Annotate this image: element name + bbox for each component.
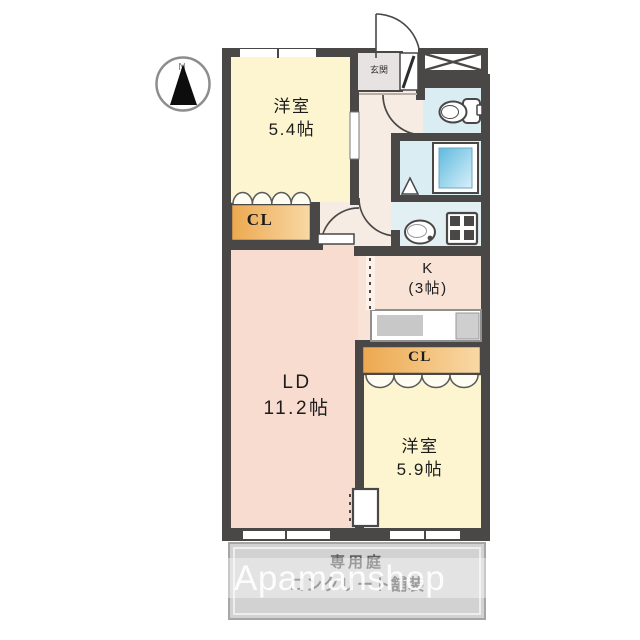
bedroom1-size: 5.4帖 [269,119,316,142]
kitchen-name: K [422,260,434,277]
kitchen-size: (3帖) [408,279,447,299]
kitchen-counter [371,310,481,341]
bedroom2-door [350,489,378,526]
ldk-partition-dashed [366,256,375,310]
entrance-label: 玄関 [370,64,388,76]
entrance-area [357,14,420,94]
meter-box-x-icon [418,48,488,76]
washbasin-icon [405,221,435,244]
north-compass-icon: N [157,58,210,111]
bedroom2-label: 洋室 5.9帖 [397,436,444,482]
watermark-text: Apamanshop [234,559,445,599]
kitchen-label: K (3帖) [408,259,447,300]
living-dining-name: LD [282,372,311,393]
bedroom1-name: 洋室 [273,97,310,116]
bedroom1-door [350,112,359,159]
closet1-label: CL [247,209,274,232]
bathtub-icon [433,143,478,193]
living-dining-size: 11.2帖 [263,396,330,422]
stove-icon [377,315,423,336]
hallway-floor [359,88,419,135]
living-door-leaf [318,234,354,244]
floor-plan-canvas: N 洋室 5.4帖 玄関 CL K (3帖) LD 11.2帖 CL 洋室 5.… [0,0,640,640]
living-dining-label: LD 11.2帖 [263,370,330,421]
washing-machine-pan-icon [447,213,477,244]
bedroom1-label: 洋室 5.4帖 [269,96,316,142]
closet2-label: CL [408,347,432,367]
bedroom2-name: 洋室 [401,437,438,456]
bedroom2-size: 5.9帖 [397,459,444,482]
toilet-icon [440,99,483,123]
